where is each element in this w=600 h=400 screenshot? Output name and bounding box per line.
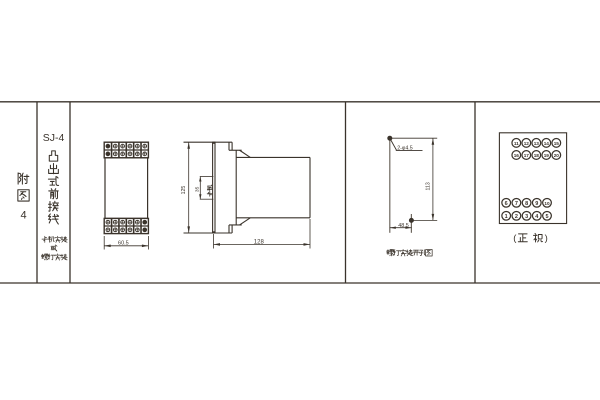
svg-text:17: 17	[524, 153, 530, 158]
svg-text:125: 125	[181, 186, 187, 195]
svg-text:48.5: 48.5	[398, 223, 409, 229]
svg-text:12: 12	[524, 141, 530, 146]
svg-text:4: 4	[20, 209, 26, 221]
svg-text:13: 13	[534, 141, 540, 146]
svg-text:113: 113	[426, 182, 432, 190]
svg-text:15: 15	[554, 141, 560, 146]
svg-text:11: 11	[514, 141, 519, 146]
svg-text:16: 16	[514, 153, 520, 158]
svg-text:1: 1	[505, 214, 508, 220]
svg-text:18: 18	[534, 153, 540, 158]
svg-text:3: 3	[525, 214, 528, 220]
svg-text:2: 2	[515, 214, 518, 220]
svg-text:19: 19	[544, 153, 550, 158]
svg-text:14: 14	[544, 141, 550, 146]
svg-text:128: 128	[254, 240, 265, 246]
svg-text:7: 7	[515, 201, 518, 207]
svg-text:2-φ4.5: 2-φ4.5	[397, 145, 413, 151]
svg-text:SJ-4: SJ-4	[43, 132, 65, 144]
svg-text:20: 20	[554, 153, 560, 158]
svg-text:8: 8	[525, 201, 528, 207]
svg-text:35: 35	[195, 186, 201, 192]
svg-text:): )	[545, 233, 548, 244]
svg-text:5: 5	[545, 214, 548, 220]
svg-text:6: 6	[505, 201, 508, 207]
svg-text:9: 9	[535, 201, 538, 207]
svg-text:10: 10	[544, 201, 550, 206]
svg-text:60.5: 60.5	[118, 241, 129, 247]
